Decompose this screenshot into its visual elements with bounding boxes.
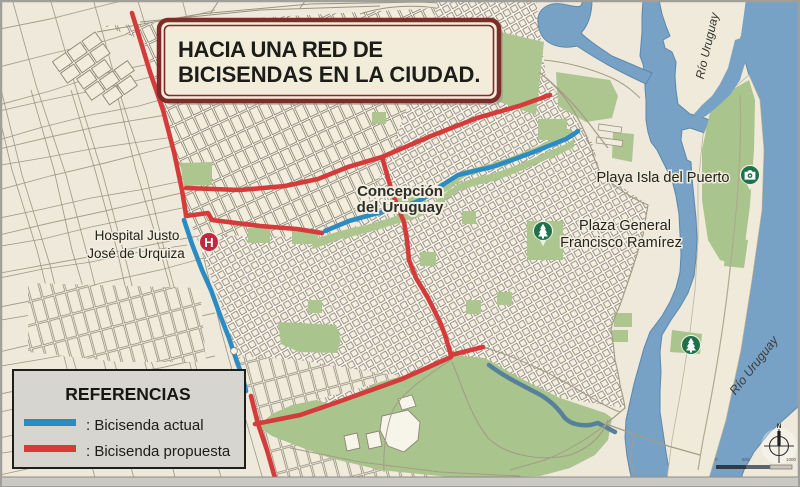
svg-text:: Bicisenda actual: : Bicisenda actual bbox=[86, 417, 204, 434]
svg-text:del Uruguay: del Uruguay bbox=[357, 199, 444, 216]
svg-text:Plaza General: Plaza General bbox=[579, 218, 671, 234]
svg-text:José de Urquiza: José de Urquiza bbox=[87, 246, 185, 261]
svg-text:1000: 1000 bbox=[786, 457, 797, 462]
svg-text:HACIA UNA RED DE: HACIA UNA RED DE bbox=[178, 37, 383, 62]
svg-text:Hospital Justo: Hospital Justo bbox=[95, 228, 180, 243]
svg-text:REFERENCIAS: REFERENCIAS bbox=[65, 384, 190, 404]
svg-text:Francisco Ramírez: Francisco Ramírez bbox=[560, 235, 682, 251]
svg-text:N: N bbox=[777, 423, 782, 430]
svg-text:500: 500 bbox=[742, 457, 750, 462]
svg-text:Playa Isla del Puerto: Playa Isla del Puerto bbox=[597, 170, 730, 186]
svg-text:: Bicisenda propuesta: : Bicisenda propuesta bbox=[86, 443, 231, 460]
svg-text:BICISENDAS EN LA CIUDAD.: BICISENDAS EN LA CIUDAD. bbox=[178, 62, 480, 87]
svg-text:H: H bbox=[204, 235, 213, 250]
svg-text:Concepción: Concepción bbox=[357, 183, 443, 200]
